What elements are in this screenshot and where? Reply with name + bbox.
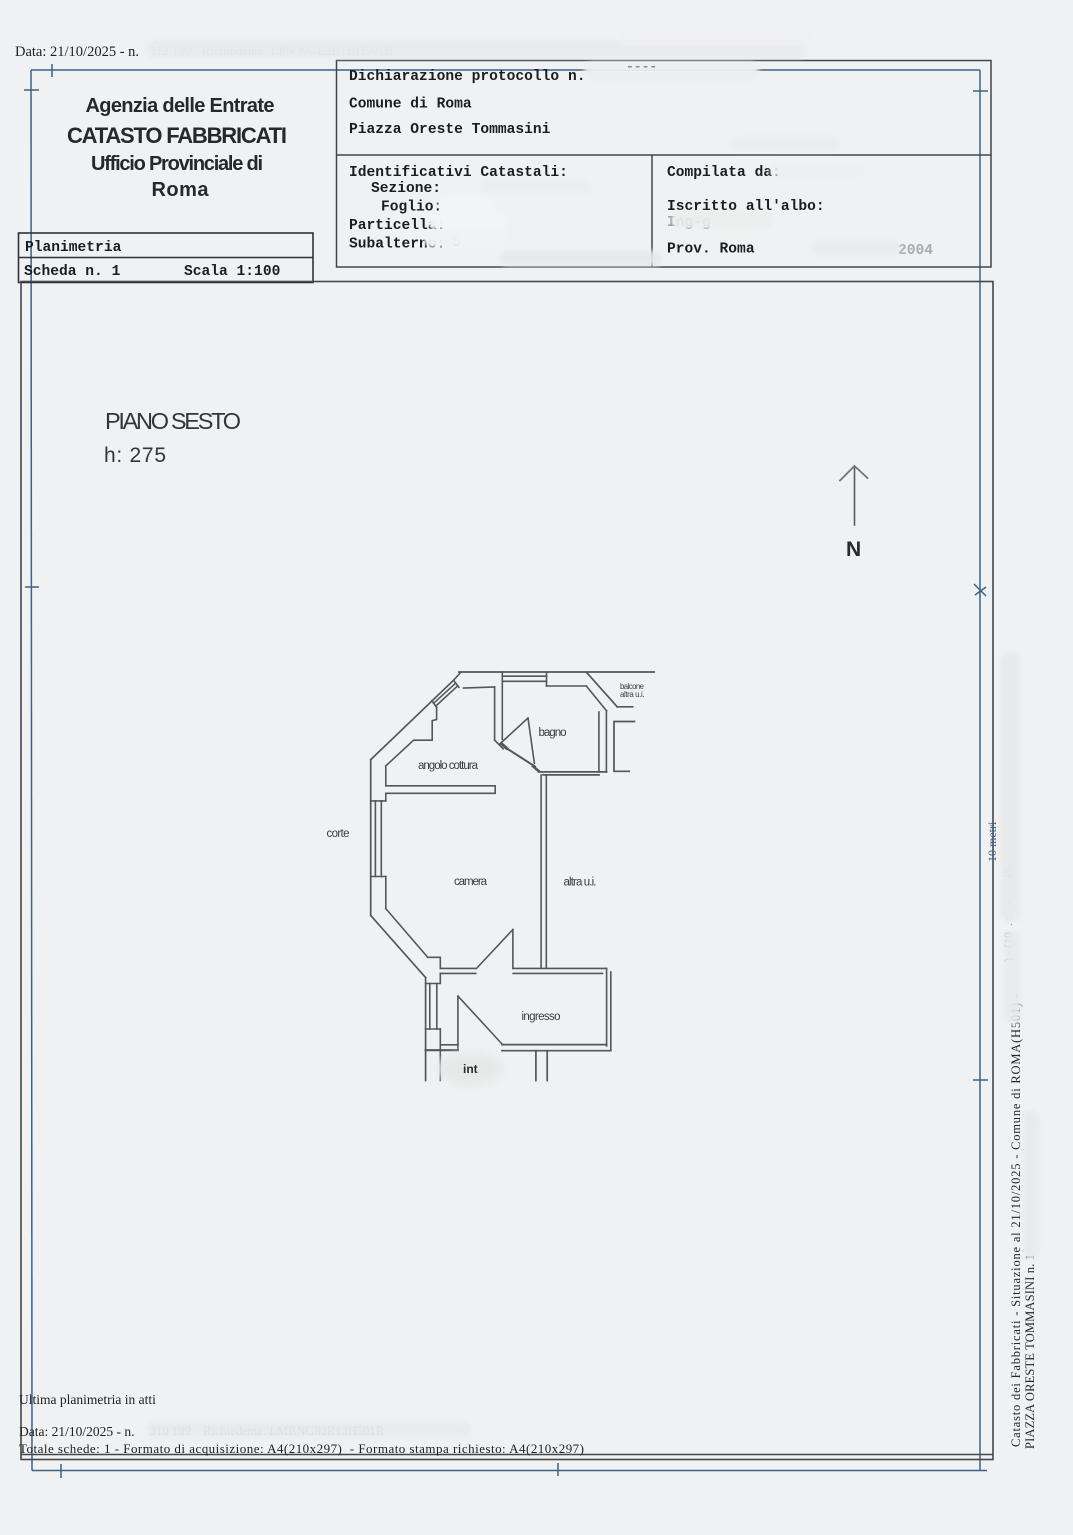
svg-text:angolo cottura: angolo cottura — [418, 760, 479, 772]
svg-text:ingresso: ingresso — [522, 1011, 561, 1023]
svg-text:Dichiarazione protocollo n.: Dichiarazione protocollo n. — [349, 69, 585, 85]
svg-text:N: N — [846, 538, 861, 561]
svg-text:Piazza Oreste Tommasini: Piazza Oreste Tommasini — [349, 122, 551, 138]
svg-text:Scheda n. 1: Scheda n. 1 — [24, 264, 121, 280]
svg-text:Foglio:: Foglio: — [381, 200, 442, 216]
svg-text:PIANO SESTO: PIANO SESTO — [105, 408, 241, 434]
svg-text:Ultima planimetria in atti: Ultima planimetria in atti — [19, 1392, 156, 1407]
svg-text:altra u.i.: altra u.i. — [620, 690, 645, 699]
svg-text:Identificativi Catastali:: Identificativi Catastali: — [349, 165, 568, 181]
svg-text:2004: 2004 — [898, 243, 933, 259]
svg-text:PIAZZA ORESTE TOMMASINI n. 1: PIAZZA ORESTE TOMMASINI n. 1 — [1023, 1254, 1037, 1449]
svg-text:Compilata da:: Compilata da: — [667, 165, 781, 181]
svg-text:camera: camera — [454, 876, 488, 888]
svg-text:Data: 21/10/2025 - n.: Data: 21/10/2025 - n. — [19, 1424, 138, 1439]
svg-text:Planimetria: Planimetria — [25, 240, 122, 256]
svg-text:bagno: bagno — [539, 727, 567, 739]
svg-text:Prov. Roma: Prov. Roma — [667, 242, 755, 258]
svg-text:Catasto dei Fabbricati - Situa: Catasto dei Fabbricati - Situazione al 2… — [1009, 990, 1023, 1447]
svg-text:Comune di Roma: Comune di Roma — [349, 97, 472, 113]
svg-text:Ufficio Provinciale di: Ufficio Provinciale di — [91, 153, 263, 175]
svg-text:Totale schede: 1 - Formato di: Totale schede: 1 - Formato di acquisizio… — [19, 1441, 584, 1456]
svg-text:h: 275: h: 275 — [104, 444, 166, 467]
svg-text:corte: corte — [327, 828, 350, 840]
svg-text:Scala 1:100: Scala 1:100 — [184, 264, 280, 280]
svg-text:altra u.i.: altra u.i. — [564, 877, 597, 889]
svg-text:Agenzia delle Entrate: Agenzia delle Entrate — [86, 95, 275, 117]
svg-text:int: int — [463, 1062, 478, 1076]
svg-text:----: ---- — [626, 59, 657, 74]
svg-text:Roma: Roma — [152, 179, 210, 201]
svg-text:Sezione:: Sezione: — [371, 181, 441, 197]
svg-text:10 metri: 10 metri — [985, 821, 999, 862]
svg-text:CATASTO FABBRICATI: CATASTO FABBRICATI — [67, 123, 287, 148]
svg-text:Data: 21/10/2025 - n.: Data: 21/10/2025 - n. — [15, 44, 143, 60]
